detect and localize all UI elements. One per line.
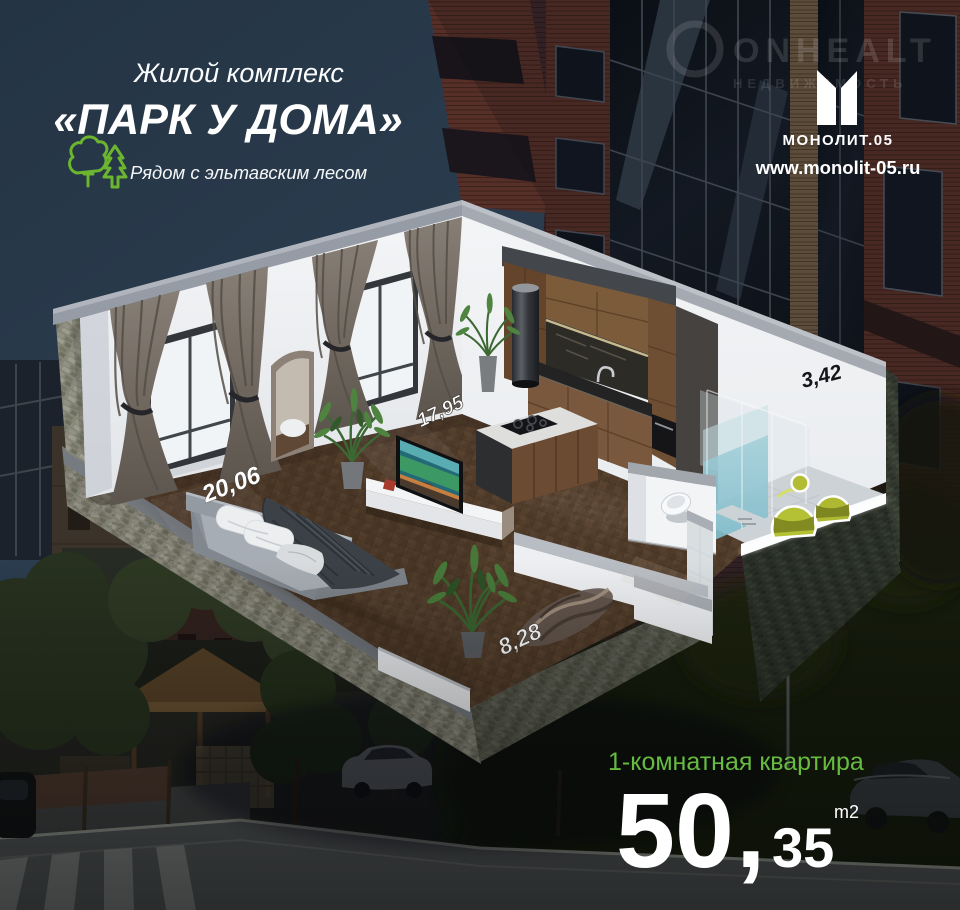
svg-text:ONHEALT: ONHEALT [733,32,937,70]
svg-text:МОНОЛИТ.05: МОНОЛИТ.05 [783,132,894,149]
svg-text:«ПАРК У ДОМА»: «ПАРК У ДОМА» [53,96,402,144]
svg-text:50: 50 [616,772,734,890]
svg-text:Жилой комплекс: Жилой комплекс [132,58,344,88]
svg-text:Рядом с эльтавским лесом: Рядом с эльтавским лесом [130,162,367,183]
svg-text:m2: m2 [834,802,859,822]
svg-text:www.monolit-05.ru: www.monolit-05.ru [755,157,921,178]
svg-text:35: 35 [772,816,834,879]
svg-text:,: , [736,772,765,890]
